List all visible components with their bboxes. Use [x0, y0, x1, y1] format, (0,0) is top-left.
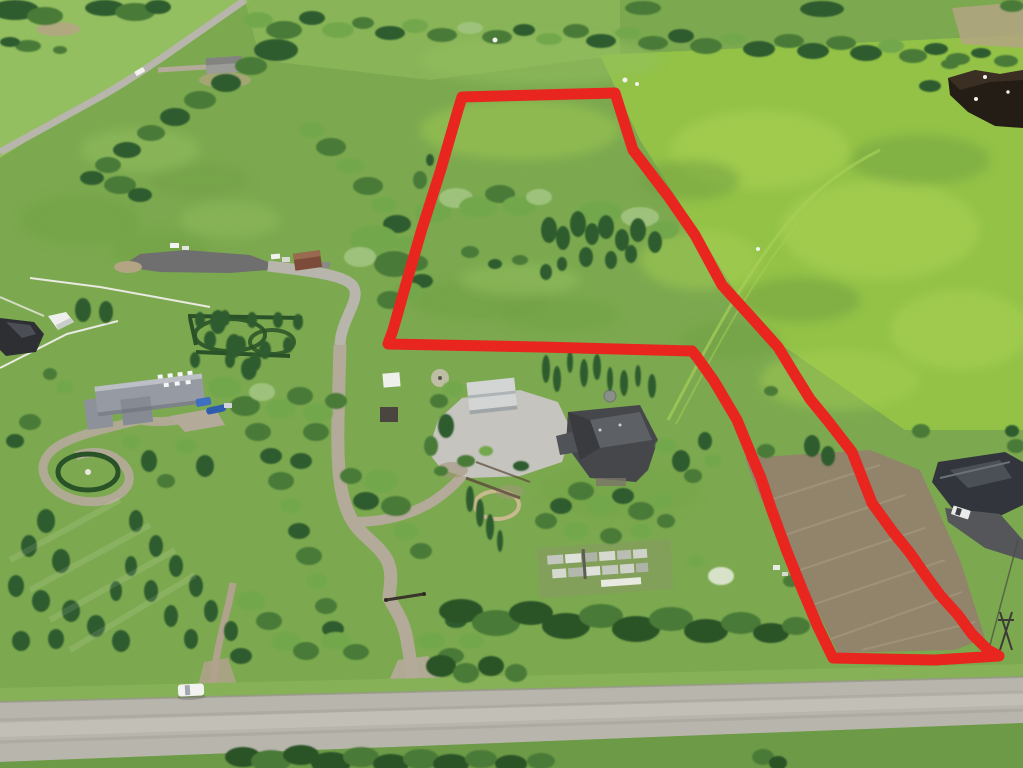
hedge-row-top — [188, 316, 302, 318]
fire-pit — [438, 376, 442, 380]
trailer — [224, 403, 232, 408]
white-object — [170, 243, 179, 248]
roof-vent — [619, 424, 622, 427]
brown-house-shed — [322, 262, 330, 268]
white-object — [182, 246, 189, 250]
cattle — [623, 78, 628, 83]
garden-ornament — [85, 469, 91, 475]
top-house-driveway — [158, 67, 206, 70]
cul-de-sac-dirt — [114, 261, 142, 273]
white-car-road — [177, 683, 206, 700]
equipment — [782, 572, 788, 576]
white-speck — [493, 38, 498, 43]
gate-post — [384, 598, 388, 602]
vehicle-cul-de-sac-2 — [282, 257, 290, 262]
white-speck — [756, 247, 760, 251]
aerial-photo — [0, 0, 1023, 768]
bird — [1006, 90, 1009, 93]
garden-boxes — [536, 539, 673, 598]
garden-shed — [380, 407, 398, 422]
cattle — [635, 82, 639, 86]
gate-post — [422, 592, 426, 596]
garden-tent — [382, 372, 400, 387]
white-garage — [466, 378, 517, 415]
equipment — [773, 565, 780, 570]
bird — [974, 97, 978, 101]
vehicle-cul-de-sac — [271, 254, 280, 260]
bird — [983, 75, 987, 79]
deck — [596, 478, 626, 486]
gazebo — [604, 390, 616, 402]
roof-vent — [599, 429, 602, 432]
